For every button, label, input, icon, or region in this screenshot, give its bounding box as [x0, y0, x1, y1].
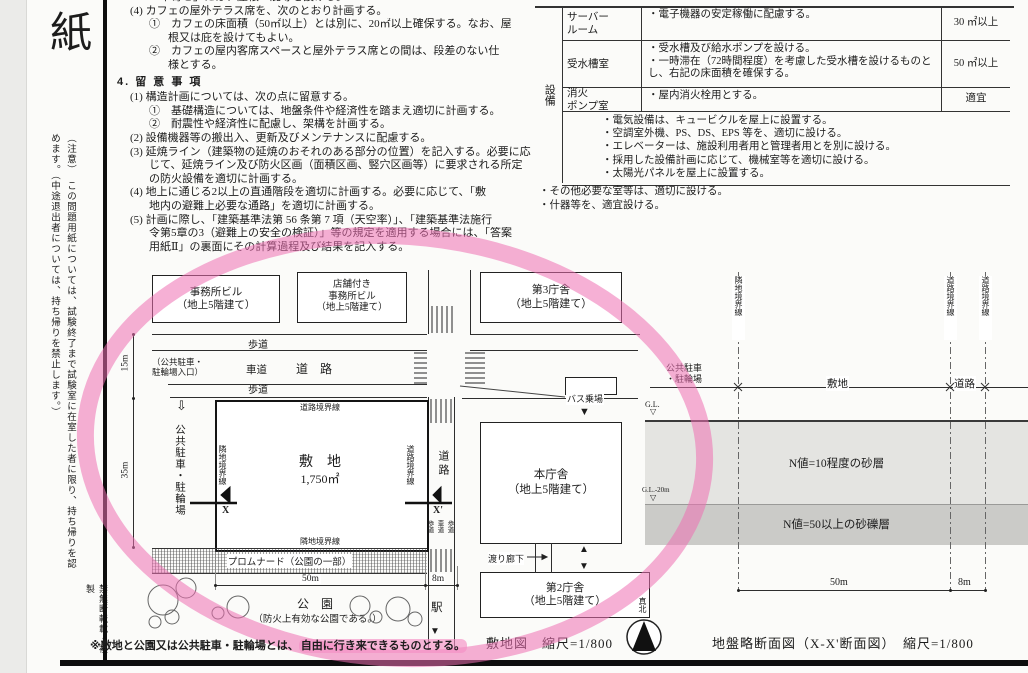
road-label: 道 路: [296, 360, 332, 377]
crosswalk: [431, 306, 453, 333]
text-line: (4) カフェの屋外テラス席を、次のとおり計画する。: [112, 5, 536, 19]
text-line: ② カフェの屋内客席スペースと屋外テラス席との間は、段差のない仕: [112, 45, 536, 59]
text-line: 用紙Ⅱ」の裏面にその計算過程及び結果を記入する。: [112, 241, 536, 255]
text-line: 地内の避難上必要な通路」を適切に計画する。: [112, 200, 536, 214]
dim-tick: [132, 333, 135, 336]
bus-curb-line: [462, 398, 638, 399]
dim-tick: [949, 589, 952, 592]
entrance-marker-up-icon: ▲: [579, 544, 589, 555]
roadway-label: 車道: [246, 362, 267, 377]
text-line: (3) 延焼ライン（建築物の延焼のおそれのある部分の位置）を記入する。必要に応: [112, 146, 536, 160]
dim-tick: [737, 589, 740, 592]
bus-stop-label: バス乗場: [566, 392, 604, 405]
gl-triangle-icon: ▽: [650, 407, 656, 416]
corridor-line: [551, 543, 552, 573]
text-line: (2) 設備機器等の搬出入、更新及びメンテナンスに配慮する。: [112, 132, 536, 146]
road-line: [470, 350, 638, 351]
crosswalk: [414, 352, 427, 384]
section-cut-x-label: X: [222, 505, 229, 516]
dim-tick: [214, 584, 217, 587]
table-row: 消火 ポンプ室 ・屋内消火栓用とする。 適宜: [562, 88, 1010, 112]
footnote-highlighted: 自由に行き来できるものとする。: [299, 639, 467, 653]
text-line: 様とする。: [112, 59, 536, 73]
section-dim-50m-label: 50m: [830, 577, 848, 588]
requirement-cell: ・受水槽及び給水ポンプを設ける。 ・一時滞在（72時間程度）を考慮した受水槽を設…: [642, 41, 942, 87]
table-group-label: 設備: [536, 7, 563, 183]
site-name-label: 敷 地: [260, 451, 380, 471]
page-title-char: 紙: [50, 10, 92, 58]
road-boundary-right-label: 道路境界線: [405, 445, 416, 511]
road-vertical-label: 道路: [435, 450, 451, 498]
table-rows: サーバー ルーム ・電子機器の安定稼働に配慮する。 30 ㎡以上 受水槽室 ・受…: [562, 7, 1010, 112]
requirement-cell: ・電子機器の安定稼働に配慮する。: [642, 7, 942, 40]
crosswalk: [465, 352, 485, 384]
road-line: [428, 270, 429, 334]
park-note-label: （防火上有効な公園である。）: [240, 611, 395, 625]
text-line: (4) 地上に通じる2以上の直通階段を適切に計画する。必要に応じて、「敷: [112, 186, 536, 200]
road-boundary-top-label: 道路境界線: [287, 402, 353, 413]
dim-tick: [984, 589, 987, 592]
sidewalk-label: 歩道: [248, 336, 268, 351]
floor-area-cell: 適宜: [942, 88, 1010, 111]
floor-area-cell: 30 ㎡以上: [942, 7, 1010, 40]
dim-tick: [132, 397, 135, 400]
text-line: ① 基礎構造については、地盤条件や経済性を踏まえ適切に計画する。: [112, 105, 536, 119]
dim-tick: [456, 584, 459, 587]
footnote-prefix: ※敷地と公園又は公共駐車・駐輪場とは、: [90, 640, 299, 652]
park-label: 公 園: [270, 595, 360, 612]
road-line: [470, 270, 471, 334]
public-parking-label: 公共駐車・駐輪場: [172, 424, 187, 552]
road-line: [168, 384, 427, 385]
road-line: [170, 397, 427, 398]
room-name-cell: 消火 ポンプ室: [562, 88, 642, 111]
crosswalk: [430, 399, 453, 423]
text-line: ② 耐震性や経済性に配慮し、架構を計画する。: [112, 118, 536, 132]
section-site-label: 敷地: [826, 376, 849, 391]
true-north-label: 真北: [637, 597, 648, 619]
road-line: [470, 334, 640, 335]
shop-office-building-box: 店舗付き 事務所ビル （地上5階建て）: [297, 272, 407, 323]
gov2-building-box: 第2庁舎 （地上5階建て）: [480, 572, 650, 618]
sidewalk-label: 歩道: [248, 385, 268, 397]
equipment-note-line: ・エレベーターは、施設利用者用と管理者用とを別に設ける。: [602, 140, 1010, 153]
equipment-note-line: ・太陽光パネルを屋上に設置する。: [602, 167, 1010, 180]
text-line: 根又は庇を設けてもよい。: [112, 32, 536, 46]
equipment-note-line: ・採用した設備計画に応じて、機械室等を適切に設ける。: [602, 154, 1010, 167]
text-line: ① カフェの床面積（50㎡以上）とは別に、20㎡以上確保する。なお、屋: [112, 18, 536, 32]
main-gov-building-box: 本庁舎 （地上5階建て）: [480, 422, 622, 544]
gov3-building-label: 第3庁舎 （地上5階建て）: [510, 284, 593, 311]
adjacent-boundary-bottom-label: 隣地境界線: [287, 536, 353, 547]
adjacent-boundary-left-label: 隣地境界線: [217, 445, 228, 511]
section-cut-x2-label: X': [433, 505, 443, 516]
dimension-line: [215, 585, 457, 586]
gravel-layer-label: N値=50以上の砂礫層: [645, 516, 1028, 532]
text-line: の防火設備を適切に計画する。: [112, 173, 536, 187]
text-line: じて、延焼ライン及び防火区画（面積区画、竪穴区画等）に要求される所定: [112, 159, 536, 173]
footer-note-line: ・その他必要な室等は、適切に設ける。: [539, 185, 1014, 199]
dim-35m-label: 35m: [120, 462, 130, 479]
text-line: (5) 計画に際し、「建築基準法第 56 条第 7 項（天空率）」、「建築基準法…: [112, 214, 536, 228]
parking-entrance-label: （公共駐車・ 駐輪場入口）: [152, 357, 203, 377]
gov2-building-label: 第2庁舎 （地上5階建て）: [524, 582, 607, 609]
frame-rule-vertical: [103, 0, 107, 663]
station-arrow-icon: ▼: [430, 626, 440, 637]
crosswalk: [430, 549, 453, 572]
section-parking-label: 公共駐車 ・駐輪場: [666, 363, 702, 385]
road-line: [454, 397, 455, 650]
main-text-block: 「車寄せ」には、屋根・庇等を設ける。(4) カフェの屋外テラス席を、次のとおり計…: [112, 0, 536, 254]
equipment-notes-cell: ・電気設備は、キュービクルを屋上に設置する。・空調室外機、PS、DS、EPS 等…: [562, 112, 1010, 186]
text-line: 4. 留 意 事 項: [112, 76, 536, 90]
lane-label-roadway: 車道: [434, 520, 444, 538]
entrance-marker-icon: ▼: [579, 561, 589, 572]
frame-rule-bottom: [60, 660, 1028, 666]
requirement-cell: ・屋内消火栓用とする。: [642, 88, 942, 111]
floor-area-cell: 50 ㎡以上: [942, 41, 1010, 87]
road-line: [152, 350, 427, 351]
site-map-caption: 敷地図 縮尺=1/800: [486, 633, 613, 652]
corridor-line: [535, 543, 536, 573]
dim-tick: [424, 584, 427, 587]
room-name-cell: 受水槽室: [562, 41, 642, 87]
parking-arrow-icon: ⇩: [176, 399, 187, 414]
road-boundary-label: 道路境界線: [944, 276, 957, 340]
dim-50m-label: 50m: [300, 574, 321, 584]
promenade-band: プロムナード（公園の一部）: [152, 548, 427, 574]
table-row: サーバー ルーム ・電子機器の安定稼働に配慮する。 30 ㎡以上: [562, 7, 1010, 41]
road-boundary-label: 道路境界線: [979, 276, 992, 340]
sand-layer-label: N値=10程度の砂層: [645, 455, 1028, 471]
office-building-label: 事務所ビル （地上5階建て）: [177, 286, 256, 312]
office-building-box: 事務所ビル （地上5階建て）: [152, 275, 280, 323]
gov3-building-box: 第3庁舎 （地上5階建て）: [480, 272, 622, 323]
promenade-label: プロムナード（公園の一部）: [227, 554, 353, 568]
main-gov-building-label: 本庁舎 （地上5階建て）: [508, 468, 594, 498]
room-name-cell: サーバー ルーム: [562, 7, 642, 40]
section-map-caption: 地盤略断面図（X-X'断面図） 縮尺=1/800: [712, 633, 974, 652]
dim-8m-label: 8m: [431, 574, 445, 584]
exam-sheet-scan: 紙 （注意） この問題用紙については、試験終了まで試験室に在室した者に限り、持ち…: [0, 0, 1028, 673]
bus-bay-curb: [460, 386, 565, 397]
equipment-note-line: ・電気設備は、キュービクルを屋上に設置する。: [602, 114, 1010, 127]
equipment-spec-table: 設備 サーバー ルーム ・電子機器の安定稼働に配慮する。 30 ㎡以上 受水槽室…: [535, 6, 1014, 8]
section-road-label: 道路: [953, 376, 976, 391]
footer-note-line: ・什器等を、適宜設ける。: [539, 199, 1014, 213]
road-line: [152, 334, 427, 335]
page-edge: [0, 0, 27, 673]
dimension-line: [133, 334, 134, 548]
site-area-label: 1,750㎡: [260, 470, 380, 487]
text-line: 令第5章の3（避難上の安全の検証）」等の規定を適用する場合には、「答案: [112, 227, 536, 241]
dim-tick: [132, 546, 135, 549]
site-footnote: ※敷地と公園又は公共駐車・駐輪場とは、自由に行き来できるものとする。: [90, 637, 467, 653]
table-row: 受水槽室 ・受水槽及び給水ポンプを設ける。 ・一時滞在（72時間程度）を考慮した…: [562, 41, 1010, 88]
dimension-line: [738, 590, 985, 591]
corridor-arrow: [527, 555, 547, 560]
table-footer-notes: ・その他必要な室等は、適切に設ける。・什器等を、適宜設ける。: [536, 183, 1014, 218]
adjacent-boundary-label: 隣地境界線: [732, 276, 745, 340]
section-dim-8m-label: 8m: [958, 577, 971, 588]
lane-label-sidewalk: 歩道: [444, 520, 454, 538]
gl-triangle-icon: ▽: [650, 493, 656, 502]
corridor-label: 渡り廊下: [488, 552, 524, 565]
handling-notice: （注意） この問題用紙については、試験終了まで試験室に在室した者に限り、持ち帰り…: [32, 133, 78, 575]
equipment-note-line: ・空調室外機、PS、DS、EPS 等を、適切に設ける。: [602, 127, 1010, 140]
shop-office-building-label: 店舗付き 事務所ビル （地上5階建て）: [316, 280, 387, 315]
text-line: (1) 構造計画については、次の点に留意する。: [112, 91, 536, 105]
entrance-marker-icon: ▼: [579, 406, 590, 418]
north-compass-icon: [627, 620, 661, 654]
dim-15m-label: 15m: [120, 355, 130, 372]
station-label: 駅: [431, 599, 443, 615]
